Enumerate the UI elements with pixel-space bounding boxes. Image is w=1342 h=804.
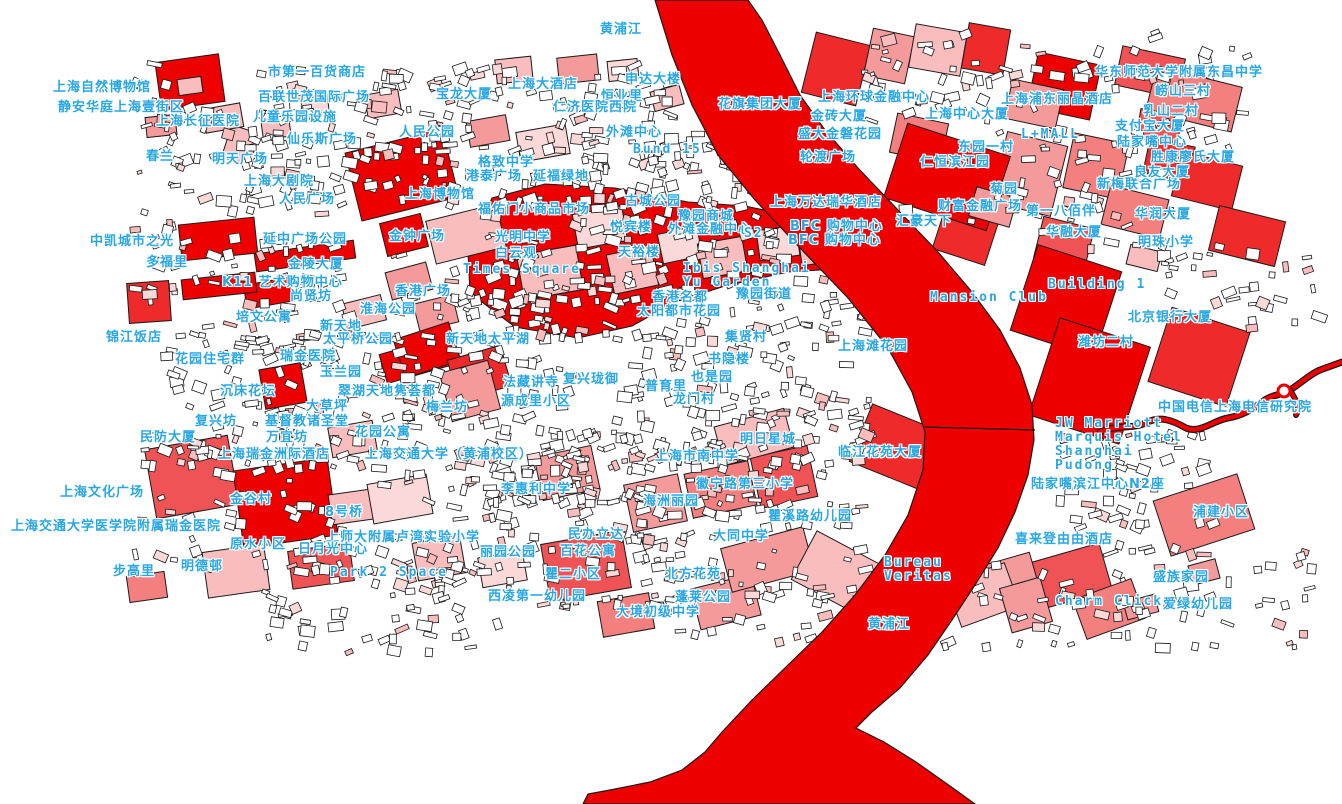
building-block — [341, 295, 386, 330]
building-small — [469, 351, 484, 362]
building-small — [507, 577, 514, 584]
building-small — [323, 407, 335, 416]
building-small — [519, 400, 529, 408]
building-small — [714, 249, 727, 257]
building-small — [829, 424, 838, 432]
building-small — [612, 416, 623, 425]
building-small — [712, 229, 719, 236]
building-small — [818, 610, 834, 622]
building-small — [706, 411, 720, 421]
building-small — [1129, 493, 1135, 498]
building-small — [141, 209, 149, 216]
building-small — [675, 551, 685, 558]
building-small — [138, 517, 147, 523]
building-small — [239, 491, 247, 498]
building-small — [437, 314, 443, 320]
building-small — [658, 448, 665, 452]
building-small — [691, 131, 704, 137]
building-small — [794, 440, 802, 448]
building-small — [295, 151, 306, 157]
building-small — [415, 147, 421, 153]
building-small — [892, 91, 903, 98]
building-small — [479, 145, 489, 150]
building-small — [616, 227, 624, 233]
building-small — [581, 218, 587, 226]
building-small — [531, 203, 536, 208]
building-small — [825, 460, 834, 468]
building-small — [1119, 520, 1128, 529]
building-small — [1204, 592, 1216, 601]
building-small — [832, 321, 841, 326]
building-small — [720, 382, 728, 393]
building-small — [702, 363, 714, 369]
building-small — [691, 219, 696, 223]
building-small — [277, 86, 283, 92]
building-small — [319, 564, 330, 575]
building-small — [801, 521, 812, 530]
building-small — [1147, 627, 1157, 638]
building-small — [781, 382, 788, 390]
building-small — [1053, 229, 1062, 236]
building-small — [534, 315, 543, 321]
building-small — [419, 585, 432, 595]
building-small — [253, 349, 264, 354]
building-small — [613, 599, 621, 610]
building-small — [284, 199, 292, 210]
building-small — [1102, 168, 1115, 179]
building-small — [622, 459, 628, 464]
building-small — [508, 529, 514, 537]
building-small — [1184, 483, 1193, 489]
building-small — [369, 449, 374, 455]
building-small — [721, 404, 736, 413]
building-small — [1119, 488, 1128, 497]
building-small — [644, 484, 656, 492]
building-small — [1060, 450, 1071, 459]
building-small — [315, 291, 328, 300]
building-small — [246, 336, 256, 342]
building-small — [626, 187, 636, 199]
building-small — [1282, 262, 1288, 273]
building-small — [637, 411, 644, 422]
building-small — [169, 259, 182, 270]
building-small — [1060, 234, 1071, 238]
building-small — [405, 588, 415, 595]
building-small — [537, 601, 550, 607]
building-small — [301, 346, 305, 350]
building-small — [566, 429, 576, 441]
building-small — [395, 624, 410, 634]
building-small — [1164, 600, 1173, 608]
building-small — [1157, 121, 1163, 127]
building-small — [152, 243, 159, 249]
building-small — [488, 299, 494, 305]
building-small — [582, 156, 589, 164]
building-small — [266, 593, 279, 602]
building-small — [161, 352, 173, 361]
building-small — [563, 176, 573, 186]
building-small — [447, 556, 458, 562]
building-small — [536, 425, 544, 436]
building-small — [605, 276, 615, 283]
building-small — [1302, 255, 1312, 260]
building-small — [1017, 640, 1023, 648]
building-small — [533, 375, 541, 382]
building-small — [253, 422, 258, 426]
building-small — [1311, 310, 1328, 323]
building-small — [709, 456, 714, 464]
building-small — [294, 464, 303, 474]
building-small — [724, 475, 730, 481]
building-small — [643, 554, 650, 563]
building-small — [341, 156, 357, 169]
building-small — [129, 285, 142, 292]
building-small — [543, 564, 548, 575]
building-small — [522, 469, 532, 478]
building-small — [1005, 143, 1010, 148]
building-small — [593, 153, 607, 163]
building-small — [641, 579, 653, 587]
building-small — [728, 570, 733, 577]
building-small — [1246, 324, 1258, 333]
building-small — [882, 49, 888, 54]
building-small — [232, 377, 242, 386]
building-small — [402, 449, 409, 460]
building-small — [654, 90, 666, 97]
building-small — [429, 83, 441, 91]
building-small — [812, 599, 822, 608]
building-small — [938, 74, 947, 86]
building-small — [666, 180, 679, 192]
building-small — [209, 152, 218, 160]
building-small — [748, 471, 759, 479]
building-small — [1010, 80, 1020, 88]
building-small — [835, 397, 849, 403]
building-small — [654, 557, 661, 562]
building-small — [452, 578, 466, 588]
building-small — [819, 324, 829, 332]
building-small — [337, 526, 346, 535]
building-small — [1272, 618, 1286, 630]
building-small — [573, 599, 579, 605]
building-small — [400, 373, 415, 383]
building-small — [153, 550, 168, 563]
building-small — [371, 101, 387, 113]
building-small — [594, 276, 605, 286]
building-small — [840, 522, 852, 529]
building-block — [1171, 151, 1242, 211]
building-small — [840, 303, 854, 310]
building-small — [374, 362, 382, 370]
building-small — [453, 633, 461, 640]
building-small — [687, 148, 694, 158]
building-small — [727, 271, 740, 278]
building-small — [157, 114, 166, 125]
building-small — [654, 150, 662, 157]
building-small — [161, 79, 172, 90]
building-small — [780, 582, 792, 590]
building-small — [450, 266, 460, 277]
building-small — [187, 460, 195, 470]
building-small — [232, 435, 239, 444]
building-small — [1146, 436, 1156, 444]
building-small — [731, 187, 737, 198]
building-small — [587, 265, 602, 270]
building-small — [1210, 297, 1222, 310]
building-small — [449, 486, 455, 492]
building-small — [149, 460, 157, 472]
building-small — [303, 556, 317, 564]
building-small — [258, 316, 264, 321]
building-small — [504, 472, 516, 481]
building-small — [434, 76, 446, 82]
building-small — [470, 538, 479, 550]
building-small — [1221, 286, 1237, 299]
building-small — [516, 360, 529, 368]
building-small — [317, 156, 330, 168]
building-small — [392, 615, 400, 622]
building-small — [333, 140, 346, 150]
building-small — [1094, 45, 1104, 58]
building-small — [731, 330, 736, 338]
building-small — [1161, 261, 1168, 266]
building-small — [802, 293, 814, 302]
building-small — [373, 82, 379, 91]
building-small — [470, 455, 485, 467]
building-small — [508, 387, 521, 396]
building-small — [398, 82, 407, 91]
building-small — [187, 446, 198, 450]
building-small — [651, 593, 658, 599]
building-small — [613, 336, 623, 343]
building-small — [630, 295, 641, 304]
building-small — [776, 293, 782, 299]
building-small — [757, 562, 766, 570]
building-small — [976, 75, 984, 86]
building-small — [275, 348, 281, 354]
building-small — [839, 504, 849, 509]
building-small — [629, 246, 639, 251]
building-small — [597, 446, 604, 452]
building-small — [310, 181, 319, 191]
building-small — [1078, 150, 1087, 158]
building-small — [827, 409, 842, 420]
building-small — [492, 172, 501, 177]
building-small — [229, 233, 241, 244]
building-small — [382, 413, 394, 422]
building-small — [618, 595, 622, 600]
building-small — [543, 322, 549, 330]
building-small — [423, 631, 437, 639]
building-small — [1203, 270, 1217, 277]
building-small — [538, 196, 543, 200]
building-small — [1197, 606, 1206, 617]
building-small — [267, 460, 276, 467]
building-small — [1054, 180, 1062, 188]
building-small — [389, 74, 403, 83]
building-small — [651, 562, 666, 572]
building-small — [497, 537, 506, 549]
building-small — [584, 92, 598, 101]
building-small — [363, 353, 371, 365]
building-small — [707, 336, 717, 347]
building-small — [220, 470, 236, 482]
building-small — [1229, 46, 1234, 51]
building-small — [374, 335, 381, 340]
building-small — [1167, 429, 1173, 434]
building-small — [764, 289, 773, 298]
building-small — [755, 505, 765, 514]
building-small — [1074, 73, 1089, 83]
building-small — [245, 400, 259, 408]
building-small — [1068, 218, 1075, 223]
building-small — [1158, 239, 1168, 251]
building-small — [1154, 564, 1165, 571]
building-small — [330, 464, 336, 470]
building-small — [378, 481, 392, 489]
building-small — [406, 106, 411, 113]
building-small — [198, 332, 205, 338]
building-small — [192, 380, 207, 394]
building-small — [1091, 193, 1098, 203]
building-small — [1165, 288, 1178, 299]
building-small — [455, 614, 464, 623]
building-small — [293, 439, 305, 449]
building-small — [572, 476, 582, 481]
building-small — [257, 109, 265, 119]
building-small — [209, 401, 225, 411]
building-small — [151, 98, 157, 105]
building-small — [414, 363, 421, 370]
building-small — [500, 523, 512, 530]
building-small — [544, 368, 555, 377]
building-small — [1226, 577, 1231, 588]
building-small — [750, 397, 760, 404]
building-small — [1225, 144, 1233, 154]
building-small — [144, 433, 158, 438]
building-small — [279, 430, 289, 441]
building-small — [348, 137, 361, 148]
building-small — [374, 153, 380, 161]
building-small — [518, 562, 531, 567]
building-small — [1193, 253, 1202, 260]
building-small — [574, 332, 582, 343]
building-small — [186, 403, 194, 410]
building-small — [683, 396, 695, 407]
building-small — [334, 265, 341, 272]
building-small — [437, 122, 443, 126]
building-small — [630, 215, 641, 227]
building-small — [788, 355, 795, 360]
building-small — [1129, 481, 1146, 494]
building-small — [766, 241, 773, 248]
building-small — [626, 537, 632, 544]
building-small — [266, 633, 272, 640]
building-small — [308, 239, 314, 249]
building-small — [1054, 125, 1067, 137]
building-small — [800, 386, 814, 398]
building-small — [1031, 65, 1044, 73]
building-small — [942, 642, 949, 650]
building-small — [268, 266, 275, 271]
building-small — [526, 89, 536, 96]
building-small — [223, 321, 237, 328]
building-small — [748, 300, 759, 305]
building-small — [638, 379, 646, 388]
building-small — [585, 557, 599, 567]
building-small — [328, 621, 344, 632]
building-small — [1169, 265, 1179, 271]
building-block — [466, 115, 510, 148]
building-small — [273, 130, 283, 135]
building-small — [827, 501, 832, 506]
building-small — [170, 183, 180, 188]
building-small — [1087, 155, 1100, 162]
building-small — [347, 455, 359, 463]
building-small — [371, 579, 380, 589]
building-small — [1111, 632, 1122, 638]
building-small — [770, 323, 784, 335]
building-small — [849, 408, 859, 416]
building-small — [329, 173, 341, 182]
building-small — [496, 509, 512, 522]
building-small — [519, 266, 530, 274]
building-small — [177, 458, 186, 466]
building-small — [1236, 110, 1248, 115]
building-small — [403, 415, 413, 421]
building-small — [189, 545, 202, 558]
building-small — [530, 170, 544, 182]
building-small — [445, 99, 455, 105]
building-small — [568, 529, 576, 536]
building-small — [748, 498, 761, 502]
building-small — [985, 115, 991, 124]
building-small — [778, 304, 784, 311]
building-small — [1221, 620, 1234, 628]
building-small — [864, 403, 871, 409]
map-canvas[interactable]: 黄浦江市第一百货商店上海自然博物馆百联世茂国际广场静安华庭上海壹街区儿童乐园设施… — [0, 0, 1342, 804]
building-small — [367, 132, 375, 138]
building-small — [383, 149, 395, 161]
building-small — [1199, 431, 1206, 440]
building-small — [441, 567, 447, 573]
building-small — [740, 414, 747, 425]
building-small — [390, 593, 395, 598]
building-small — [701, 184, 712, 195]
building-small — [760, 522, 772, 533]
building-small — [590, 127, 603, 133]
building-small — [743, 227, 751, 236]
building-small — [774, 637, 784, 647]
building-small — [452, 603, 465, 614]
map-geometry-layer — [0, 0, 1342, 804]
building-small — [1195, 517, 1205, 528]
building-small — [1126, 433, 1133, 438]
building-small — [1179, 80, 1184, 86]
building-small — [442, 182, 446, 186]
building-small — [270, 68, 278, 76]
building-small — [642, 347, 652, 359]
building-small — [784, 317, 800, 330]
building-small — [606, 201, 619, 211]
building-small — [745, 386, 756, 396]
building-small — [460, 484, 468, 496]
building-small — [271, 167, 284, 176]
building-small — [407, 604, 415, 610]
building-small — [477, 65, 490, 73]
building-small — [686, 338, 695, 347]
building-small — [556, 367, 563, 372]
